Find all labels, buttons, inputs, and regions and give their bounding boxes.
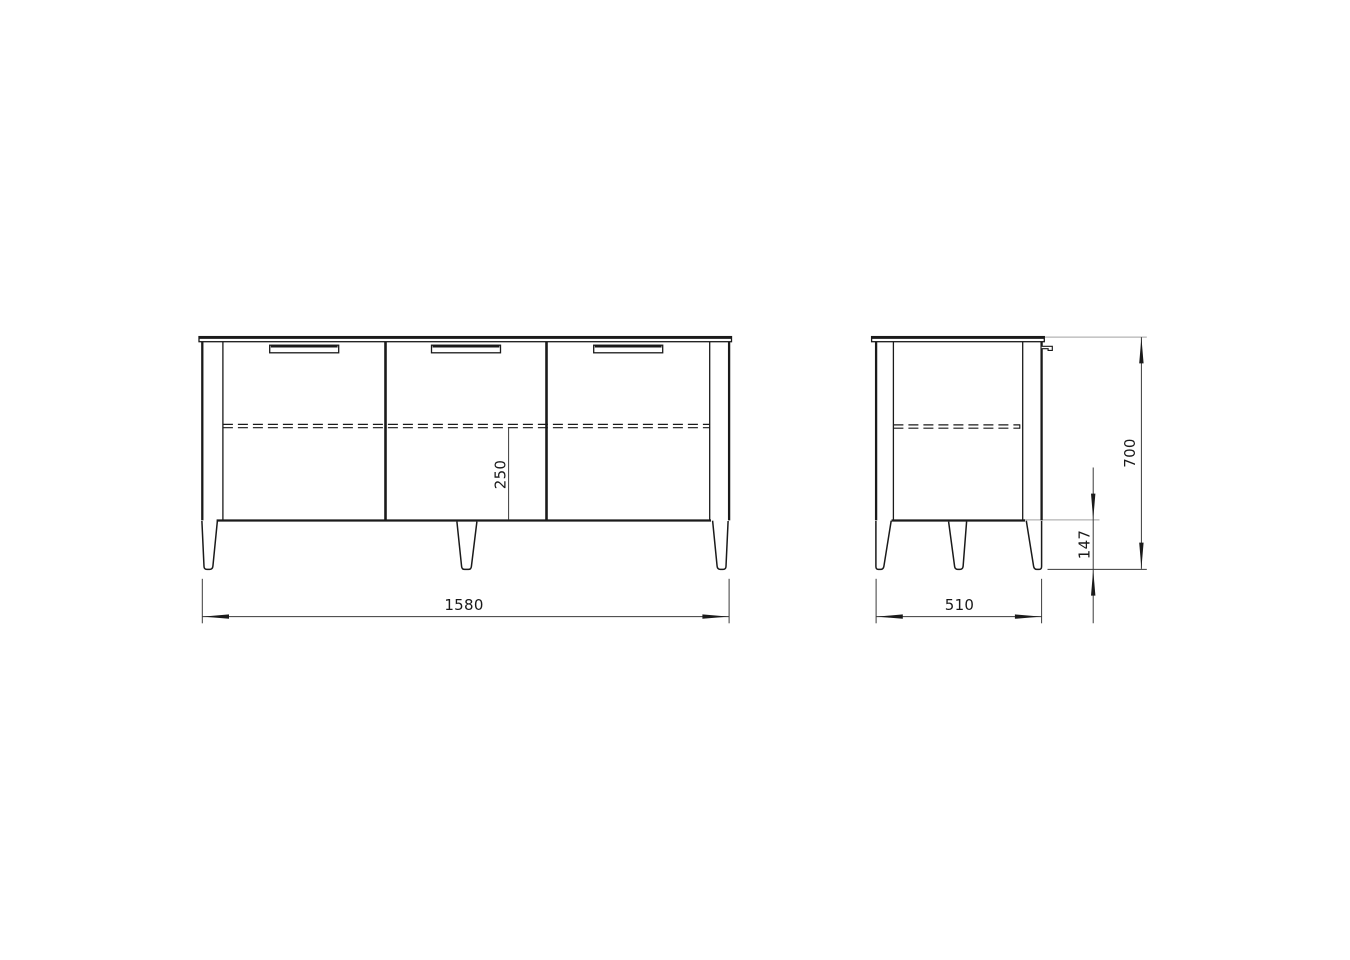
side-back-leg <box>876 521 891 570</box>
front-view <box>199 337 732 570</box>
front-handle-slot-1 <box>270 345 339 353</box>
front-shelf-dashed-line <box>223 424 710 427</box>
arrowhead-left-icon <box>877 614 903 618</box>
side-front-leg <box>1026 521 1041 570</box>
arrowhead-left-icon <box>203 614 229 618</box>
front-center-leg <box>457 522 477 570</box>
arrowhead-right-icon <box>702 614 728 618</box>
front-right-leg <box>713 521 729 570</box>
side-handle-profile <box>1042 346 1053 350</box>
dimension-overall-height: 700 <box>1121 337 1144 569</box>
dim-label-overall-height: 700 <box>1121 438 1139 468</box>
dimension-overall-width: 1580 <box>202 579 729 624</box>
dimension-leg-height: 147 <box>1075 468 1095 624</box>
arrowhead-up-icon <box>1091 570 1095 596</box>
side-shelf-dashed-line <box>893 424 1019 428</box>
front-handle-slot-2 <box>432 345 501 353</box>
dimension-overall-depth: 510 <box>876 579 1042 624</box>
dim-label-overall-width: 1580 <box>444 596 483 614</box>
side-center-leg <box>949 522 967 570</box>
technical-drawing-page: 1580 250 510 147 700 <box>0 0 1350 960</box>
dim-label-leg-height: 147 <box>1075 530 1093 560</box>
arrowhead-down-icon <box>1091 494 1095 520</box>
dimension-shelf-to-bottom: 250 <box>491 428 509 520</box>
front-left-leg <box>202 521 218 570</box>
dim-label-shelf-to-bottom: 250 <box>491 460 509 490</box>
front-handle-slot-3 <box>594 345 663 353</box>
arrowhead-down-icon <box>1139 543 1143 569</box>
dim-label-overall-depth: 510 <box>945 596 975 614</box>
arrowhead-right-icon <box>1015 614 1041 618</box>
arrowhead-up-icon <box>1139 337 1143 363</box>
side-view <box>872 337 1053 570</box>
technical-drawing-canvas: 1580 250 510 147 700 <box>0 0 1350 960</box>
